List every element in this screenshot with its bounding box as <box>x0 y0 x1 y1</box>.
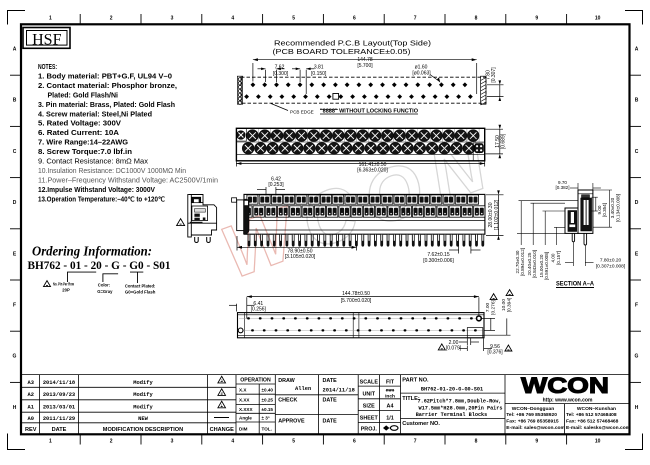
svg-text:[0.253]: [0.253] <box>268 182 284 188</box>
svg-text:E-mail: sales@wcon.com: E-mail: sales@wcon.com <box>506 425 565 431</box>
svg-text:[5.700]: [5.700] <box>357 63 373 69</box>
svg-text:[0.376]: [0.376] <box>487 350 503 356</box>
svg-text:OPERATION: OPERATION <box>240 378 271 384</box>
svg-text:Modify: Modify <box>133 380 153 386</box>
svg-text:10: 10 <box>595 439 601 445</box>
svg-text:1: 1 <box>49 16 52 22</box>
svg-text:Tel: +86 512 57468408: Tel: +86 512 57468408 <box>566 412 617 418</box>
svg-text:H: H <box>13 405 17 411</box>
svg-text:Plated: Gold Flash/Ni: Plated: Gold Flash/Ni <box>48 92 119 99</box>
svg-text:F: F <box>13 303 16 309</box>
svg-text:[0.256]: [0.256] <box>251 306 267 312</box>
svg-text:Ordering Information:: Ordering Information: <box>32 244 152 259</box>
svg-text:[0.276]: [0.276] <box>490 300 496 315</box>
svg-text:A2: A2 <box>27 392 33 398</box>
svg-text:9: 9 <box>535 16 538 22</box>
svg-text:G: G <box>635 354 639 360</box>
svg-text:http: www.wcon.com: http: www.wcon.com <box>543 398 593 404</box>
svg-text:8: 8 <box>475 16 478 22</box>
svg-text:PART NO.: PART NO. <box>402 378 429 384</box>
svg-text:(PCB BOARD TOLERANCE±0.05): (PCB BOARD TOLERANCE±0.05) <box>273 47 411 56</box>
svg-text:2: 2 <box>110 439 113 445</box>
svg-text:Fax: +86 769 85358915: Fax: +86 769 85358915 <box>506 419 559 425</box>
svg-text:G0=Gold Flash: G0=Gold Flash <box>125 289 156 294</box>
svg-text:3.40±0.20: 3.40±0.20 <box>610 197 615 218</box>
svg-text:3.81: 3.81 <box>314 64 324 70</box>
svg-text:12.Impulse Withstand Voltage:: 12.Impulse Withstand Voltage: 3000V <box>38 187 155 194</box>
svg-text:UNIT: UNIT <box>363 392 376 398</box>
svg-text:1: 1 <box>221 404 223 408</box>
svg-text:7: 7 <box>414 439 417 445</box>
svg-text:7: 7 <box>414 16 417 22</box>
svg-text:2013/03/01: 2013/03/01 <box>43 405 75 411</box>
svg-text:H: H <box>635 405 639 411</box>
svg-text:SIZE: SIZE <box>363 404 375 410</box>
svg-text:[0.307]: [0.307] <box>491 67 497 83</box>
svg-text:SCALE: SCALE <box>360 379 379 385</box>
svg-text:A0: A0 <box>27 416 33 422</box>
svg-text:APPROVE: APPROVE <box>278 419 305 425</box>
svg-text:2014/11/18: 2014/11/18 <box>43 380 75 386</box>
svg-text:Modify: Modify <box>133 392 153 398</box>
svg-text:[0.354]: [0.354] <box>602 203 607 217</box>
svg-text:9. Contact Resistance: 8mΩ Ma: 9. Contact Resistance: 8mΩ Max <box>38 159 149 166</box>
svg-text:Customer NO.: Customer NO. <box>402 421 440 427</box>
svg-text:C: C <box>13 149 17 155</box>
svg-text:±0.40: ±0.40 <box>262 388 274 393</box>
svg-text:6: 6 <box>353 16 356 22</box>
svg-text:[0.843±0.010]: [0.843±0.010] <box>532 250 537 278</box>
svg-text:± 3°: ± 3° <box>262 416 270 421</box>
svg-text:6: 6 <box>353 439 356 445</box>
svg-text:[0.689]: [0.689] <box>501 133 507 149</box>
svg-text:Angle: Angle <box>239 416 252 421</box>
svg-text:[0.150]: [0.150] <box>311 71 327 77</box>
svg-text:DRAW: DRAW <box>278 378 295 384</box>
svg-text:C: C <box>635 149 639 155</box>
svg-text:[0.300±0.006]: [0.300±0.006] <box>423 258 454 264</box>
svg-text:DATE: DATE <box>323 419 338 425</box>
svg-text:20.40±0.25: 20.40±0.25 <box>527 252 532 275</box>
svg-text:NEW: NEW <box>138 416 148 422</box>
svg-text:2. Contact material: Phosphor: 2. Contact material: Phosphor bronze, <box>38 83 177 90</box>
svg-text:Allen: Allen <box>295 386 311 392</box>
svg-text:7.62: 7.62 <box>275 64 285 70</box>
svg-text:Modify: Modify <box>133 405 153 411</box>
svg-text:W17.5mm*H28.0mm,20Pin Pairs: W17.5mm*H28.0mm,20Pin Pairs <box>418 405 502 411</box>
svg-text:A: A <box>635 47 639 53</box>
svg-text:3: 3 <box>171 16 174 22</box>
svg-text:REV: REV <box>25 427 37 433</box>
svg-text:4: 4 <box>231 439 234 445</box>
svg-text:D: D <box>13 200 17 206</box>
svg-text:10.00: 10.00 <box>501 299 507 311</box>
svg-text:[0.300]: [0.300] <box>273 71 289 77</box>
svg-text:5: 5 <box>292 16 295 22</box>
svg-text:SHEET: SHEET <box>360 415 379 421</box>
svg-text:WCON–Kunshan: WCON–Kunshan <box>577 406 616 412</box>
svg-text:9: 9 <box>535 439 538 445</box>
svg-text:20P: 20P <box>62 288 70 293</box>
svg-text:A1: A1 <box>27 405 33 411</box>
svg-text:1/1: 1/1 <box>386 415 394 421</box>
svg-text:1: 1 <box>49 439 52 445</box>
svg-text:BH762-01-20-G-G0-S01: BH762-01-20-G-G0-S01 <box>421 386 483 392</box>
svg-text:[0.382]: [0.382] <box>555 185 569 190</box>
svg-text:HSF: HSF <box>32 31 61 48</box>
svg-text:7.00: 7.00 <box>485 303 491 313</box>
svg-text:PCB EDGE: PCB EDGE <box>290 109 314 114</box>
svg-text:DIM: DIM <box>239 427 248 432</box>
svg-text:WCON–Dongguan: WCON–Dongguan <box>512 406 554 412</box>
svg-text:X.X: X.X <box>239 388 247 393</box>
svg-text:A4: A4 <box>387 404 394 410</box>
svg-text:±0.25: ±0.25 <box>262 398 274 403</box>
svg-text:Fax: +86 512 57468468: Fax: +86 512 57468468 <box>566 419 619 425</box>
svg-text:6. Rated Current: 10A: 6. Rated Current: 10A <box>38 130 119 137</box>
svg-text:13.Operation Temperature:–40℃: 13.Operation Temperature:–40℃ to +120℃ <box>38 195 165 203</box>
svg-text:A3: A3 <box>27 380 33 386</box>
svg-text:CHECK: CHECK <box>278 398 297 404</box>
svg-text:DATE: DATE <box>323 378 338 384</box>
svg-text:2011/11/29: 2011/11/29 <box>43 416 75 422</box>
svg-text:10.Insulation Resistance: DC10: 10.Insulation Resistance: DC1000V 1000MΩ… <box>38 168 186 175</box>
svg-text:2: 2 <box>221 392 223 396</box>
svg-text:B: B <box>13 98 17 104</box>
svg-text:[1.102±0.012]: [1.102±0.012] <box>494 199 500 230</box>
svg-text:[0.591±0.008]: [0.591±0.008] <box>544 252 549 280</box>
svg-text:PROJ.: PROJ. <box>361 427 378 433</box>
svg-text:10: 10 <box>595 16 601 22</box>
svg-text:SECTION A–A: SECTION A–A <box>556 281 594 288</box>
svg-text:[0.134±0.008]: [0.134±0.008] <box>616 194 621 222</box>
svg-text:±0.15: ±0.15 <box>262 407 274 412</box>
svg-text:[0.307±0.008]: [0.307±0.008] <box>596 263 625 269</box>
svg-text:Barrier Terminal Blocks: Barrier Terminal Blocks <box>416 412 488 418</box>
svg-text:DATE: DATE <box>323 398 338 404</box>
svg-text:CHANGE: CHANGE <box>210 427 235 433</box>
svg-text:4. Screw material: Steel,Ni P: 4. Screw material: Steel,Ni Plated <box>38 111 152 118</box>
svg-text:[0.157]: [0.157] <box>556 251 561 265</box>
svg-text:4.00: 4.00 <box>551 253 556 262</box>
svg-text:4: 4 <box>231 16 234 22</box>
svg-text:B: B <box>635 98 639 104</box>
svg-text:11.Power–Frequency Withstand V: 11.Power–Frequency Withstand Voltage: AC… <box>38 177 218 184</box>
svg-text:8: 8 <box>475 439 478 445</box>
svg-text:mm: mm <box>386 389 395 394</box>
svg-text:5. Rated Voltage: 300V: 5. Rated Voltage: 300V <box>38 121 121 128</box>
svg-text:7.62Pitch*7.8mm,Double-Row,: 7.62Pitch*7.8mm,Double-Row, <box>417 399 501 405</box>
svg-text:9.00: 9.00 <box>597 205 602 214</box>
svg-text:No. Pin Per Row: No. Pin Per Row <box>53 282 74 287</box>
svg-text:Color:: Color: <box>98 283 110 288</box>
svg-text:22.70±0.30: 22.70±0.30 <box>515 250 520 273</box>
svg-text:3: 3 <box>171 439 174 445</box>
svg-text:8. Screw Torque:7.0 lbf.in: 8. Screw Torque:7.0 lbf.in <box>38 149 132 156</box>
svg-text:[ø0.063]: [ø0.063] <box>412 70 431 76</box>
svg-text:144.78±0.50: 144.78±0.50 <box>342 291 370 297</box>
svg-text:[0.894±0.012]: [0.894±0.012] <box>520 248 525 276</box>
svg-text:2014/11/18: 2014/11/18 <box>323 388 355 394</box>
svg-text:X.XXX: X.XXX <box>239 407 253 412</box>
svg-text:G: G <box>13 354 17 360</box>
svg-text:7.80±0.20: 7.80±0.20 <box>600 258 622 264</box>
svg-text:7. Wire Range:14–22AWG: 7. Wire Range:14–22AWG <box>38 140 129 147</box>
svg-text:D: D <box>635 200 639 206</box>
svg-text:2013/09/23: 2013/09/23 <box>43 392 75 398</box>
svg-text:1. Body material: PBT+G.F, UL: 1. Body material: PBT+G.F, UL94 V–0 <box>38 74 172 81</box>
svg-text:BH762 - 01 - 20 - G - G0 - S01: BH762 - 01 - 20 - G - G0 - S01 <box>28 260 171 272</box>
svg-text:5: 5 <box>292 439 295 445</box>
svg-text:NOTES:: NOTES: <box>38 64 57 71</box>
svg-text:3: 3 <box>221 379 223 383</box>
svg-text:MODIFICATION DESCRIPTION: MODIFICATION DESCRIPTION <box>103 427 183 433</box>
svg-text:Contact Plated:: Contact Plated: <box>125 283 155 288</box>
svg-text:E-mail: salesks@wcon.com: E-mail: salesks@wcon.com <box>566 425 631 431</box>
svg-text:G=Gray: G=Gray <box>97 289 113 294</box>
svg-text:A: A <box>13 47 17 53</box>
svg-text:2: 2 <box>110 16 113 22</box>
svg-text:inch: inch <box>385 393 395 399</box>
svg-text:3. Pin material: Brass, Plate: 3. Pin material: Brass, Plated: Gold Fla… <box>38 102 175 109</box>
svg-text:TOL.: TOL. <box>262 427 272 432</box>
svg-text:[5.700±0.020]: [5.700±0.020] <box>341 298 372 304</box>
svg-text:FIT: FIT <box>386 379 395 385</box>
svg-text:15.00±0.20: 15.00±0.20 <box>539 254 544 277</box>
svg-text:DATE: DATE <box>52 427 67 433</box>
svg-text:Tel: +86 769 85358920: Tel: +86 769 85358920 <box>506 412 557 418</box>
svg-text:X.XX: X.XX <box>239 398 250 403</box>
svg-text:WCON: WCON <box>521 373 609 398</box>
svg-text:F: F <box>635 303 638 309</box>
svg-text:[0.394]: [0.394] <box>506 298 512 313</box>
